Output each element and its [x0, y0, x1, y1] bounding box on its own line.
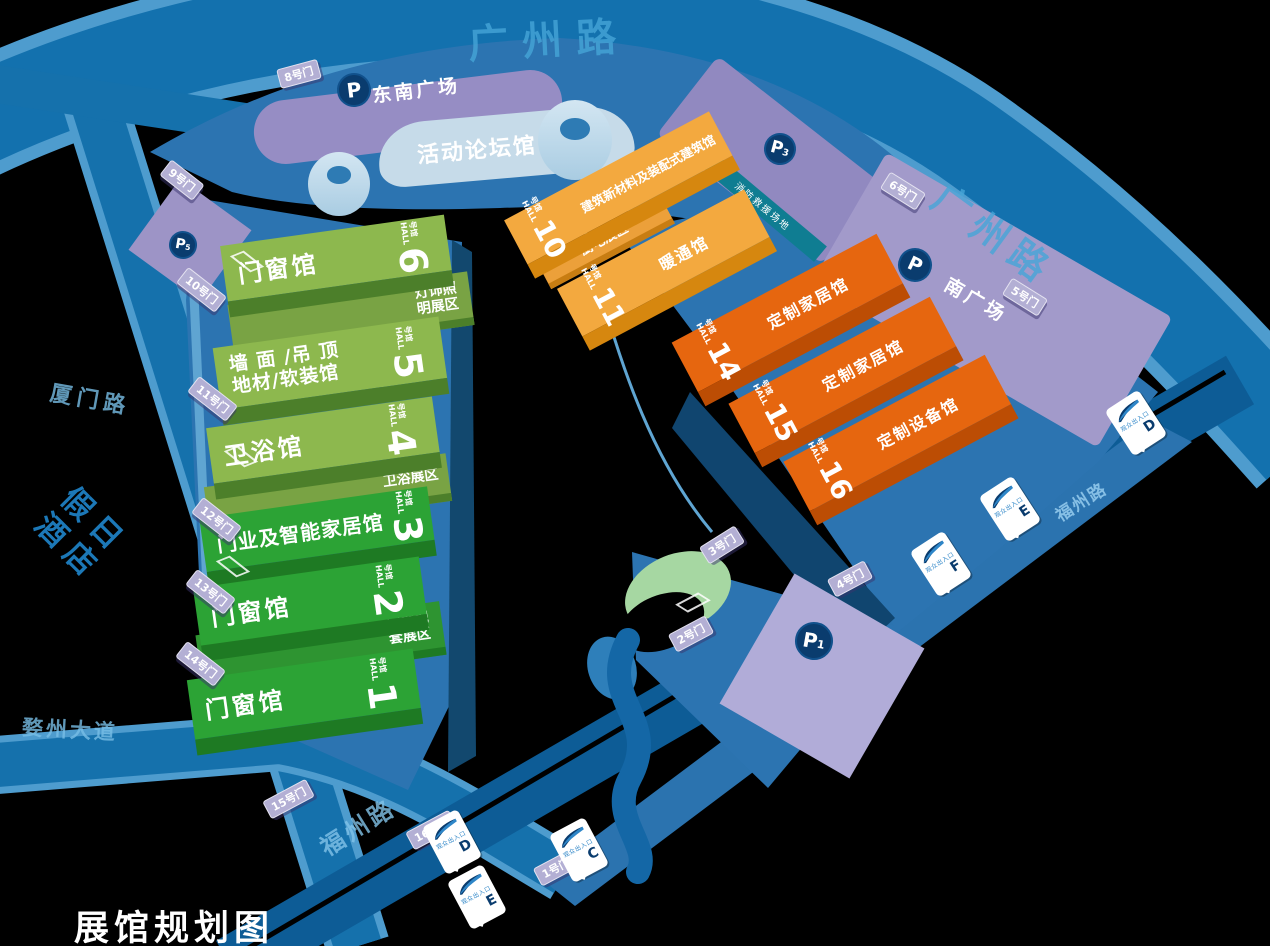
hall-5-name: 墙 面 /吊 顶 地材/软装馆: [228, 340, 344, 399]
hall-2-number: 号馆HALL 2: [358, 564, 414, 617]
parking-letter: P: [345, 79, 362, 101]
entrance-letter: D: [457, 836, 475, 856]
hall-1-name: 门窗馆: [202, 679, 287, 725]
hall-5-number: 号馆HALL 5: [378, 326, 434, 379]
cylinder-hole: [327, 166, 352, 184]
parking-letter: P: [905, 253, 926, 276]
entrance-letter: F: [947, 557, 964, 576]
cylinder-hole: [560, 118, 590, 140]
entrance-letter: E: [1016, 502, 1033, 521]
entrance-letter: C: [585, 844, 602, 863]
hall-9-name: 活动论坛馆: [416, 127, 538, 169]
map-title: 展馆规划图: [74, 900, 274, 946]
hall-4-number: 号馆HALL 4: [371, 403, 427, 456]
entrance-letter: E: [484, 891, 500, 910]
exhibition-map: 广州路 广州路 厦门路 婺州大道 福州路 福州路 假日 酒店 东南广场 消防救援…: [0, 0, 1270, 946]
tower-cylinder-left: [308, 152, 370, 216]
entrance-letter: D: [1141, 416, 1159, 436]
parking-number: 5: [184, 244, 191, 253]
map-base-art: [0, 0, 1270, 946]
hall-6-number: 号馆HALL 6: [383, 221, 439, 274]
parking-number: 3: [781, 148, 790, 159]
hall-1-number: 号馆HALL 1: [352, 657, 408, 710]
hall-10-number: 号馆HALL 10: [510, 196, 576, 260]
hall-3-number: 号馆HALL 3: [378, 490, 434, 543]
parking-number: 1: [816, 639, 825, 651]
